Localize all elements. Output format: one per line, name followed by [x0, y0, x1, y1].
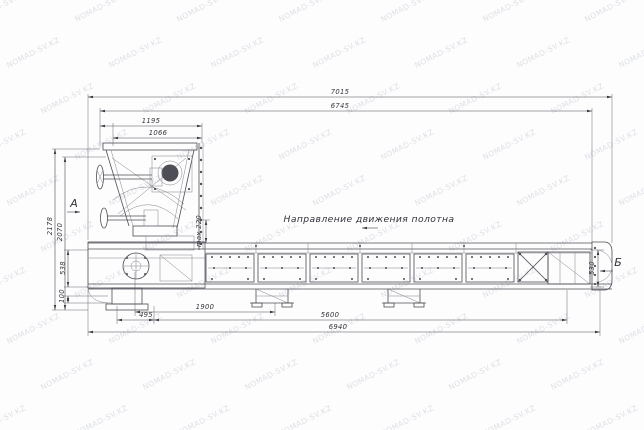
handwheel-lower	[101, 208, 108, 228]
conveyor-body	[88, 242, 612, 310]
dim-overall-length: 7015	[331, 88, 350, 96]
hopper-rim	[103, 143, 197, 150]
dim-belt-height-left: 538	[59, 261, 67, 275]
dim-1900: 1900	[196, 303, 215, 311]
view-a-label: А	[69, 197, 78, 210]
drive-head-unit	[88, 143, 205, 288]
support-leg	[250, 289, 294, 307]
dim-head-width: 1195	[142, 117, 161, 125]
support-leg	[382, 289, 426, 307]
dim-495: 495	[139, 311, 153, 319]
belt-direction-label: Направление движения полотна	[284, 214, 455, 225]
hopper-outlet	[133, 226, 177, 236]
conveyor-technical-drawing: 7015 6745 1195 1066 2178 2070 538 100 53…	[0, 0, 644, 430]
dim-5600: 5600	[321, 311, 340, 319]
belt-panel	[466, 254, 514, 282]
technical-drawing-page: NOMAD-SV.KZNOMAD-SV.KZNOMAD-SV.KZNOMAD-S…	[0, 0, 644, 430]
dim-base-length: 6940	[329, 323, 348, 331]
head-foot	[112, 288, 142, 304]
dim-foot-height: 100	[58, 289, 66, 303]
view-labels: А Б	[67, 197, 622, 271]
dim-head-inner-width: 1066	[149, 129, 168, 137]
dim-height-inner: 2070	[56, 223, 64, 242]
belt-panel	[206, 254, 254, 282]
view-b-label: Б	[614, 256, 622, 269]
belt-panel	[414, 254, 462, 282]
dim-6745: 6745	[331, 102, 350, 110]
belt-direction-annotation: Направление движения полотна	[284, 214, 455, 228]
belt-panel	[362, 254, 410, 282]
dim-height-outer: 2178	[46, 216, 54, 235]
drive-pulley	[162, 165, 179, 182]
dimension-layer: 7015 6745 1195 1066 2178 2070 538 100 53…	[46, 88, 612, 332]
belt-panel	[258, 254, 306, 282]
belt-panel	[310, 254, 358, 282]
